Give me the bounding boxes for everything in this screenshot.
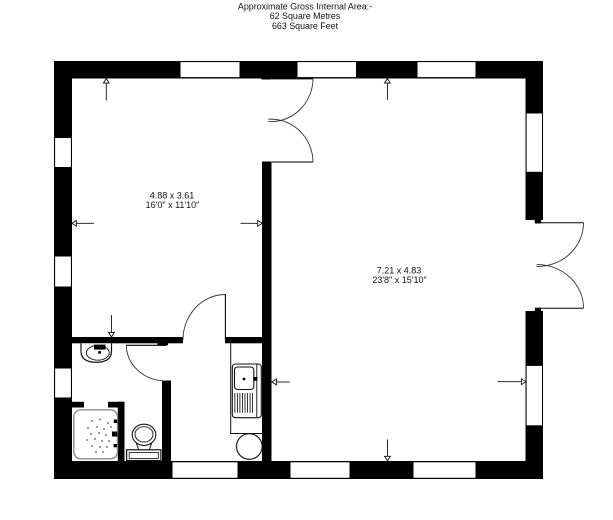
svg-text:23'8" x 15'10": 23'8" x 15'10" [372,275,426,285]
svg-text:16'0" x 11'10": 16'0" x 11'10" [146,200,200,210]
svg-text:Approximate Gross Internal Are: Approximate Gross Internal Area:- [238,1,372,11]
svg-text:62 Square Metres: 62 Square Metres [270,11,341,21]
svg-text:4.88 x 3.61: 4.88 x 3.61 [150,190,195,200]
svg-text:663 Square Feet: 663 Square Feet [272,21,339,31]
svg-text:7.21 x 4.83: 7.21 x 4.83 [377,266,422,276]
